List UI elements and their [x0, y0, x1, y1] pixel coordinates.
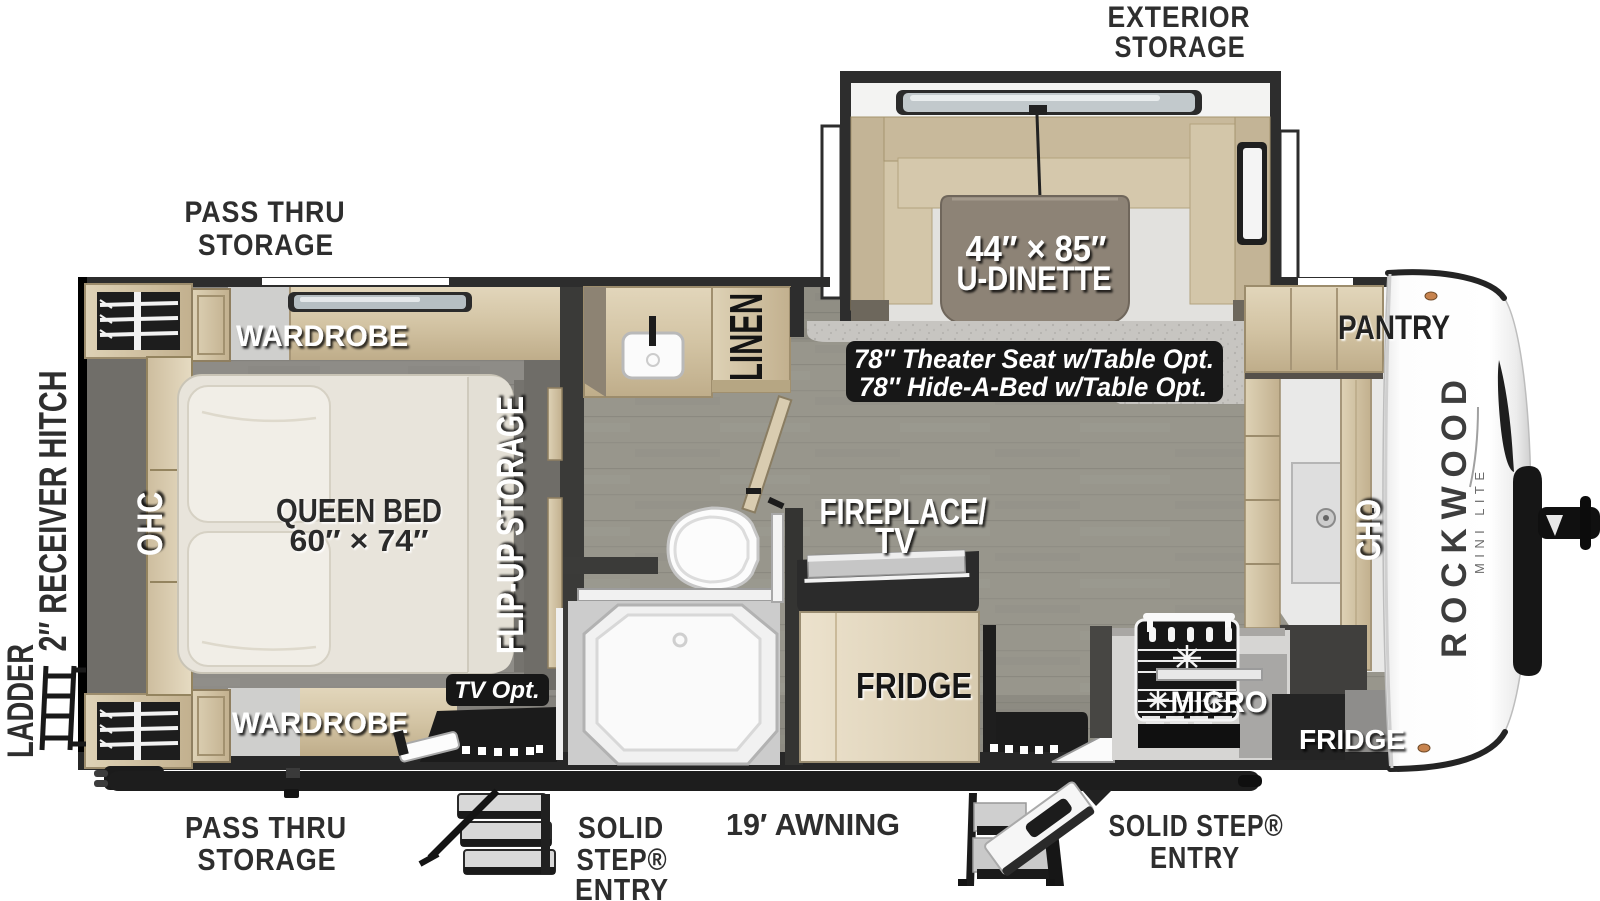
svg-text:EXTERIOR: EXTERIOR: [1108, 1, 1251, 34]
svg-text:FRIDGE: FRIDGE: [856, 665, 972, 706]
svg-text:U-DINETTE: U-DINETTE: [957, 260, 1112, 298]
svg-text:78″ Hide-A-Bed w/Table Opt.: 78″ Hide-A-Bed w/Table Opt.: [859, 372, 1207, 402]
svg-text:TV: TV: [875, 520, 915, 561]
svg-text:ENTRY: ENTRY: [575, 872, 669, 901]
svg-text:WARDROBE: WARDROBE: [232, 707, 408, 740]
svg-text:OHC: OHC: [131, 492, 170, 556]
svg-text:MICRO: MICRO: [1171, 686, 1268, 719]
svg-text:WARDROBE: WARDROBE: [236, 320, 408, 353]
svg-text:FRIDGE: FRIDGE: [1299, 724, 1405, 755]
svg-text:LADDER: LADDER: [0, 644, 41, 758]
svg-text:CHO: CHO: [1350, 499, 1388, 561]
svg-text:60″ × 74″: 60″ × 74″: [290, 523, 429, 558]
svg-text:PASS THRU: PASS THRU: [185, 196, 346, 229]
svg-text:STORAGE: STORAGE: [198, 842, 337, 877]
svg-text:ROCKWOOD: ROCKWOOD: [1435, 378, 1474, 658]
svg-text:STORAGE: STORAGE: [198, 229, 334, 262]
svg-text:ENTRY: ENTRY: [1150, 840, 1240, 875]
svg-text:PASS THRU: PASS THRU: [185, 810, 347, 845]
svg-text:78″ Theater Seat w/Table Opt.: 78″ Theater Seat w/Table Opt.: [854, 344, 1214, 374]
svg-text:PANTRY: PANTRY: [1338, 309, 1450, 347]
svg-text:LINEN: LINEN: [720, 293, 772, 381]
svg-text:STORAGE: STORAGE: [1115, 31, 1246, 64]
svg-text:SOLID: SOLID: [578, 810, 664, 845]
svg-text:FLIP-UP STORAGE: FLIP-UP STORAGE: [490, 396, 532, 654]
svg-text:SOLID STEP®: SOLID STEP®: [1109, 808, 1284, 843]
svg-text:MINI LITE: MINI LITE: [1472, 468, 1487, 574]
svg-text:2″ RECEIVER HITCH: 2″ RECEIVER HITCH: [32, 371, 75, 652]
svg-text:19′ AWNING: 19′ AWNING: [726, 807, 900, 842]
svg-text:TV Opt.: TV Opt.: [454, 677, 539, 704]
